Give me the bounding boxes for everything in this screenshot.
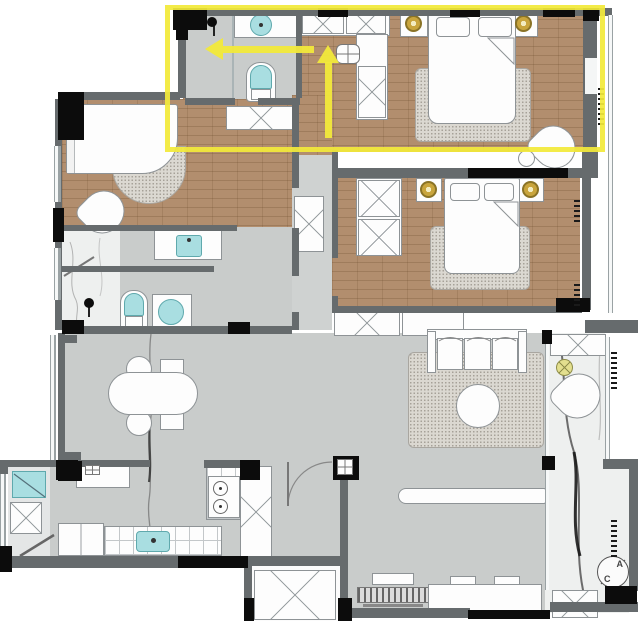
bedroom2-wardrobe-x2 bbox=[358, 219, 400, 256]
sofa-cushion-2 bbox=[464, 338, 491, 370]
bedroom2-wardrobe-x1 bbox=[358, 180, 400, 217]
wall-baths-bottom-black-1 bbox=[62, 320, 84, 334]
arrow-up-head bbox=[317, 45, 339, 63]
wall-balcony-step bbox=[603, 459, 638, 469]
compass-letter-bottom: C bbox=[604, 574, 611, 584]
dining-table bbox=[108, 372, 198, 415]
bedroom2-pillow-right bbox=[484, 183, 514, 201]
wall-storage-black-2 bbox=[338, 598, 352, 621]
wall-kitchen-bottom-black-2 bbox=[178, 556, 248, 568]
stove-burner-2-center bbox=[219, 505, 222, 508]
sofa-arm-left bbox=[427, 331, 436, 373]
window-utility-left bbox=[0, 474, 6, 556]
bedroom2-cabinet-bottom bbox=[334, 310, 400, 336]
wall-kitchen-bottom-black-1 bbox=[0, 546, 12, 572]
wall-living-bottom bbox=[345, 608, 470, 618]
bedroom2-lamp-left bbox=[420, 181, 437, 198]
bath3-basin bbox=[158, 299, 184, 325]
wall-baths-bottom bbox=[62, 326, 292, 334]
balcony-cabinet-top bbox=[550, 334, 606, 356]
compass-letter-top: A bbox=[617, 559, 624, 569]
wall-baths-divider bbox=[62, 266, 214, 272]
window-balcony-right bbox=[605, 337, 610, 459]
post-dining-1 bbox=[65, 335, 77, 343]
wall-bed2-top-black bbox=[468, 168, 568, 178]
window-bed3-left-1 bbox=[54, 146, 61, 202]
bedroom2-lamp-right bbox=[522, 181, 539, 198]
wall-kitchen-black-2 bbox=[240, 460, 260, 480]
dining-chair-4 bbox=[160, 413, 184, 430]
window-living-balcony-1 bbox=[545, 344, 549, 456]
wall-kitchen-top-2 bbox=[204, 460, 242, 468]
window-living-balcony-2 bbox=[545, 470, 549, 590]
floor-plan-image: A C bbox=[0, 0, 640, 621]
bath2-faucet bbox=[187, 238, 191, 242]
wall-bed2-left-1 bbox=[332, 150, 338, 258]
wall-balcony-top bbox=[585, 320, 638, 333]
wall-dining-left bbox=[58, 333, 65, 465]
wall-balcony-bottom-black bbox=[605, 586, 637, 604]
wall-balcony-black-1 bbox=[542, 330, 552, 344]
wall-storage-top bbox=[250, 556, 342, 566]
bath3-toilet-bowl bbox=[124, 293, 144, 316]
window-ticks-balcony-1 bbox=[611, 352, 617, 392]
wall-bed3-corner-black bbox=[58, 92, 84, 140]
arrow-left-shaft bbox=[222, 46, 314, 53]
wall-balcony-black-2 bbox=[542, 456, 555, 470]
bedroom2-pillow-left bbox=[450, 183, 480, 201]
wall-hall-left-2 bbox=[292, 228, 299, 276]
tv-console bbox=[398, 488, 546, 504]
wall-balcony-right bbox=[629, 469, 638, 591]
wall-baths-bottom-black-2 bbox=[228, 322, 250, 334]
wall-utility-cap bbox=[0, 460, 8, 474]
coffee-table bbox=[456, 384, 500, 428]
arrow-left-head bbox=[205, 38, 223, 60]
wall-bed2-bottom bbox=[332, 306, 582, 313]
wall-kitchen-top-black bbox=[56, 460, 78, 480]
master-side-table bbox=[518, 150, 535, 167]
wall-step-right bbox=[582, 150, 598, 178]
tv-stand-line bbox=[363, 604, 423, 607]
water-heater bbox=[337, 459, 353, 475]
sofa-cushion-3 bbox=[492, 338, 518, 370]
media-item-1 bbox=[450, 576, 476, 585]
wall-bed2-right bbox=[582, 178, 591, 310]
tv-unit bbox=[357, 587, 431, 603]
storage-cabinet bbox=[254, 570, 336, 620]
window-dining-left bbox=[50, 335, 56, 463]
wall-hall-left-3 bbox=[292, 312, 299, 330]
stove-burner-1-center bbox=[219, 487, 222, 490]
kitchen-cabinet-double bbox=[58, 523, 104, 556]
sofa-arm-right bbox=[518, 331, 527, 373]
kitchen-small-appliance bbox=[85, 465, 100, 475]
media-item-2 bbox=[494, 576, 520, 585]
kitchen-faucet bbox=[151, 538, 156, 543]
sofa-cushion-1 bbox=[437, 338, 463, 370]
window-ticks-balcony-2 bbox=[611, 520, 617, 560]
wall-bed2-bottom-black bbox=[556, 298, 590, 312]
wall-storage-black-1 bbox=[244, 598, 254, 621]
arrow-up-shaft bbox=[325, 62, 332, 138]
window-ticks-bed2-2 bbox=[574, 284, 580, 308]
washing-machine bbox=[12, 471, 46, 498]
wall-baths-top bbox=[62, 225, 237, 231]
highlight-box bbox=[165, 5, 605, 152]
media-shelf bbox=[372, 573, 414, 585]
bath3-shower-head-icon bbox=[84, 298, 94, 308]
wall-bed3-left-black bbox=[53, 208, 64, 242]
window-glazing-right bbox=[608, 15, 613, 313]
window-ticks-bed2-1 bbox=[574, 200, 580, 224]
wall-living-bottom-black bbox=[468, 610, 550, 619]
balcony-plant bbox=[556, 359, 573, 376]
ac-compass: A C bbox=[597, 556, 629, 588]
window-bed3-left-2 bbox=[54, 248, 61, 300]
post-dining-2 bbox=[65, 452, 81, 460]
shower-marble-floor bbox=[62, 229, 120, 330]
utility-cabinet bbox=[10, 502, 42, 534]
